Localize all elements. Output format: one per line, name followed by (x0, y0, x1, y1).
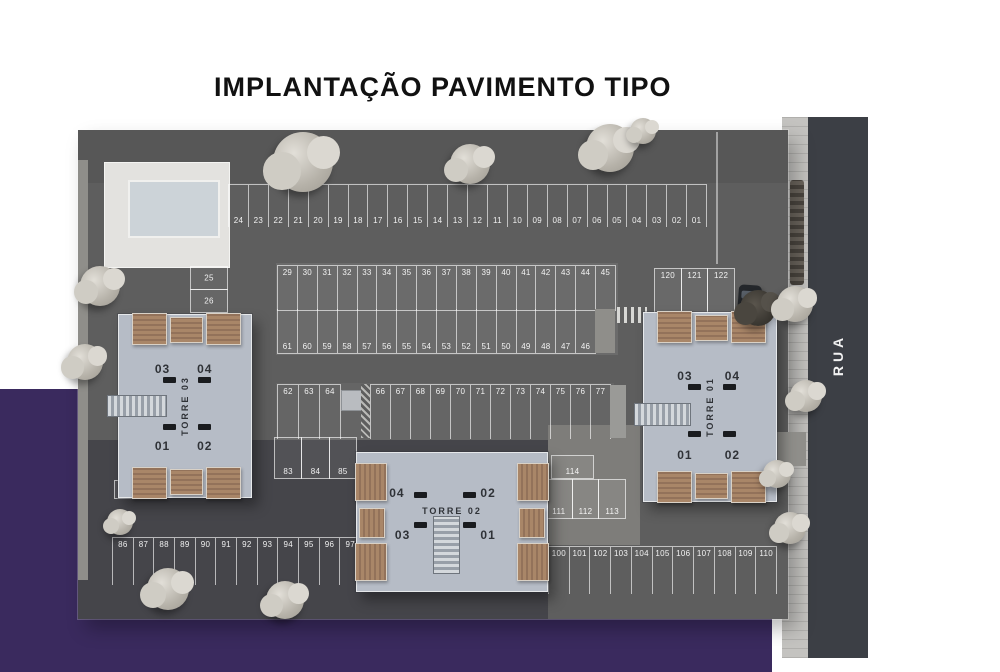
parking-stall: 73 (511, 385, 531, 439)
parking-stall-number: 15 (408, 216, 427, 225)
parking-stall-number: 87 (134, 540, 154, 549)
hedge-strip (790, 180, 804, 285)
balcony-roof (695, 315, 727, 341)
boundary-wall-line (716, 132, 718, 264)
parking-stall: 100 (549, 547, 570, 594)
stairwell (433, 516, 460, 573)
parking-stall-number: 40 (497, 268, 516, 277)
tree-icon (273, 132, 333, 192)
parking-stall: 67 (391, 385, 411, 439)
island-end-patch (595, 309, 615, 353)
parking-stall: 75 (551, 385, 571, 439)
parking-stall-number: 42 (536, 268, 555, 277)
parking-stall: 04 (627, 185, 647, 227)
balcony-roof (170, 469, 202, 495)
parking-stall-number: 18 (349, 216, 368, 225)
parking-stall-number: 21 (289, 216, 308, 225)
parking-stall: 93 (258, 538, 279, 585)
parking-stall-number: 92 (237, 540, 257, 549)
parking-stall-number: 02 (667, 216, 686, 225)
balcony-roof (657, 471, 692, 503)
parking-stall: 34 (377, 266, 397, 310)
parking-stall: 58 (338, 309, 358, 353)
parking-stall: 44 (576, 266, 596, 310)
parking-stall: 85 (329, 437, 357, 479)
parking-stall: 74 (531, 385, 551, 439)
parking-stall: 18 (349, 185, 369, 227)
page-title: IMPLANTAÇÃO PAVIMENTO TIPO (214, 72, 672, 103)
parking-stall-number: 103 (611, 549, 631, 558)
parking-stall-number: 72 (491, 387, 510, 396)
parking-stall-number: 94 (278, 540, 298, 549)
parking-stall-number: 67 (391, 387, 410, 396)
parking-mid-row-left: 626364 (277, 384, 341, 439)
parking-stall-number: 109 (736, 549, 756, 558)
tree-icon (80, 266, 120, 306)
parking-stall: 11 (488, 185, 508, 227)
parking-stall-number: 96 (320, 540, 340, 549)
unit-label: 01 (145, 439, 179, 453)
parking-stall-number: 13 (448, 216, 467, 225)
parking-stall: 47 (556, 309, 576, 353)
parking-stall: 31 (318, 266, 338, 310)
parking-stall-number: 54 (417, 342, 436, 351)
tree-icon (630, 118, 656, 144)
parking-stall-number: 71 (471, 387, 490, 396)
parking-stall-number: 121 (682, 271, 708, 280)
parking-stall-number: 88 (154, 540, 174, 549)
parking-stall: 83 (274, 437, 302, 479)
parking-stall-number: 19 (329, 216, 348, 225)
parking-stall-number: 49 (517, 342, 536, 351)
balcony-roof (206, 313, 241, 345)
parking-stall-number: 122 (708, 271, 734, 280)
parking-stall-number: 17 (368, 216, 387, 225)
parking-stall: 92 (237, 538, 258, 585)
parking-stall: 05 (608, 185, 628, 227)
parking-stall: 19 (329, 185, 349, 227)
stairwell (634, 403, 691, 426)
parking-stall: 94 (278, 538, 299, 585)
parking-spot-114: 114 (551, 455, 593, 479)
parking-stall-number: 59 (318, 342, 337, 351)
parking-stall: 114 (551, 455, 594, 479)
unit-label: 02 (463, 486, 512, 500)
parking-stall-number: 44 (576, 268, 595, 277)
parking-stall: 39 (477, 266, 497, 310)
parking-stall-number: 86 (113, 540, 133, 549)
unit-label: 01 (463, 528, 512, 542)
parking-stall: 72 (491, 385, 511, 439)
parking-stall-number: 66 (371, 387, 390, 396)
balcony-roof (206, 467, 241, 499)
parking-stall: 41 (517, 266, 537, 310)
parking-stall-number: 90 (196, 540, 216, 549)
parking-stall: 91 (216, 538, 237, 585)
parking-stall-number: 12 (468, 216, 487, 225)
parking-stall-number: 74 (531, 387, 550, 396)
parking-stall-number: 110 (756, 549, 776, 558)
tree-icon (763, 460, 791, 488)
parking-stall-number: 107 (694, 549, 714, 558)
parking-stall-number: 84 (302, 467, 328, 476)
tower-01: 03 04 01 02 TORRE 01 (643, 312, 777, 502)
balcony-roof (132, 313, 167, 345)
tower-name: TORRE 03 (180, 376, 190, 436)
parking-stall-number: 36 (417, 268, 436, 277)
parking-stall-number: 20 (309, 216, 328, 225)
parking-stall-number: 31 (318, 268, 337, 277)
parking-stall-number: 105 (653, 549, 673, 558)
swimming-pool (128, 180, 220, 238)
parking-stall: 38 (457, 266, 477, 310)
parking-stall: 25 (190, 266, 228, 290)
parking-stall-number: 35 (397, 268, 416, 277)
parking-stall: 90 (196, 538, 217, 585)
parking-stall-number: 11 (488, 216, 507, 225)
parking-stall-number: 16 (388, 216, 407, 225)
parking-stall-number: 26 (191, 297, 227, 306)
parking-stall-number: 91 (216, 540, 236, 549)
elevator-door (163, 424, 176, 430)
balcony-roof (657, 311, 692, 343)
tree-icon (450, 144, 490, 184)
parking-stall-number: 101 (570, 549, 590, 558)
balcony-roof (517, 543, 549, 581)
parking-stall: 50 (497, 309, 517, 353)
parking-stall: 113 (598, 479, 626, 519)
parking-stall: 45 (596, 266, 616, 310)
parking-stall: 12 (468, 185, 488, 227)
parking-stall-number: 33 (358, 268, 377, 277)
parking-stall: 43 (556, 266, 576, 310)
parking-stall-number: 75 (551, 387, 570, 396)
parking-stall-number: 23 (249, 216, 268, 225)
parking-stall: 10 (508, 185, 528, 227)
tree-icon (266, 581, 304, 619)
parking-stall-number: 113 (599, 507, 625, 516)
parking-stall: 14 (428, 185, 448, 227)
parking-stall-number: 102 (590, 549, 610, 558)
unit-label: 02 (188, 439, 222, 453)
parking-stall-number: 120 (655, 271, 681, 280)
parking-stall-number: 47 (556, 342, 575, 351)
parking-stall: 53 (437, 309, 457, 353)
parking-island-upper: 2930313233343536373839404142434445 (277, 265, 616, 311)
balcony-roof (695, 473, 727, 499)
elevator-door (163, 377, 176, 383)
parking-stall: 51 (477, 309, 497, 353)
parking-stall-number: 30 (298, 268, 317, 277)
parking-stall: 61 (278, 309, 298, 353)
parking-stall-number: 112 (573, 507, 599, 516)
mid-row-end-patch (610, 385, 626, 438)
unit-label: 03 (378, 528, 427, 542)
balcony-roof (517, 463, 549, 501)
parking-stall-number: 104 (632, 549, 652, 558)
parking-stall: 37 (437, 266, 457, 310)
parking-stall-number: 05 (608, 216, 627, 225)
parking-stall: 102 (590, 547, 611, 594)
parking-stall-number: 106 (673, 549, 693, 558)
parking-stall: 33 (358, 266, 378, 310)
parking-stall: 86 (113, 538, 134, 585)
parking-stall: 62 (278, 385, 299, 439)
unit-label: 04 (715, 369, 749, 383)
parking-stall: 32 (338, 266, 358, 310)
parking-stall: 42 (536, 266, 556, 310)
tree-icon (147, 568, 189, 610)
balcony-roof (355, 543, 387, 581)
parking-stall-number: 51 (477, 342, 496, 351)
parking-stall: 52 (457, 309, 477, 353)
parking-stall-number: 100 (549, 549, 569, 558)
parking-stall: 13 (448, 185, 468, 227)
parking-stall: 15 (408, 185, 428, 227)
parking-stall-number: 08 (548, 216, 567, 225)
parking-stall: 76 (571, 385, 591, 439)
parking-stall: 40 (497, 266, 517, 310)
parking-stall: 16 (388, 185, 408, 227)
parking-stall-number: 52 (457, 342, 476, 351)
parking-stall-number: 57 (358, 342, 377, 351)
parking-stall: 110 (756, 547, 777, 594)
parking-stall: 02 (667, 185, 687, 227)
parking-stall-number: 69 (431, 387, 450, 396)
parking-stall-number: 34 (377, 268, 396, 277)
parking-stall-number: 70 (451, 387, 470, 396)
parking-stall: 103 (611, 547, 632, 594)
parking-stall-number: 41 (517, 268, 536, 277)
parking-stall-number: 03 (647, 216, 666, 225)
parking-stall-number: 25 (191, 274, 227, 283)
parking-stall: 84 (301, 437, 329, 479)
parking-stall-number: 29 (278, 268, 297, 277)
parking-stall: 08 (548, 185, 568, 227)
parking-stall: 03 (647, 185, 667, 227)
parking-stall-number: 73 (511, 387, 530, 396)
parking-stall: 35 (397, 266, 417, 310)
parking-stall: 111 (545, 479, 573, 519)
parking-stall: 96 (320, 538, 341, 585)
unit-label: 03 (145, 362, 179, 376)
parking-stall: 06 (588, 185, 608, 227)
parking-stall: 09 (528, 185, 548, 227)
utility-box (341, 390, 362, 411)
parking-stall-number: 89 (175, 540, 195, 549)
parking-stall: 20 (309, 185, 329, 227)
parking-stall: 101 (570, 547, 591, 594)
tree-icon (777, 286, 813, 322)
parking-stall-number: 46 (576, 342, 595, 351)
parking-stall: 66 (371, 385, 391, 439)
parking-stall: 46 (576, 309, 596, 353)
parking-stall-number: 10 (508, 216, 527, 225)
parking-stall-number: 114 (552, 467, 593, 476)
parking-stall-number: 38 (457, 268, 476, 277)
parking-stall: 63 (299, 385, 320, 439)
parking-stall-number: 55 (397, 342, 416, 351)
parking-stall: 17 (368, 185, 388, 227)
elevator-door (198, 424, 211, 430)
parking-stall-number: 61 (278, 342, 297, 351)
parking-stall: 107 (694, 547, 715, 594)
street-label: RUA (829, 334, 847, 376)
parking-stall-number: 50 (497, 342, 516, 351)
balcony-roof (170, 317, 202, 343)
parking-stall-number: 111 (546, 507, 572, 516)
parking-spots-83-85: 838485 (274, 437, 356, 479)
parking-stall: 29 (278, 266, 298, 310)
balcony-roof (132, 467, 167, 499)
parking-stall: 68 (411, 385, 431, 439)
unit-label: 03 (668, 369, 702, 383)
parking-stall-number: 14 (428, 216, 447, 225)
parking-stall: 69 (431, 385, 451, 439)
parking-stall-number: 58 (338, 342, 357, 351)
parking-stall-number: 06 (588, 216, 607, 225)
parking-stall-number: 48 (536, 342, 555, 351)
parking-stall: 36 (417, 266, 437, 310)
balcony-roof (519, 508, 545, 538)
parking-stall: 71 (471, 385, 491, 439)
parking-stall-number: 22 (269, 216, 288, 225)
parking-stall-number: 85 (330, 467, 356, 476)
tree-icon (67, 344, 103, 380)
parking-stall-number: 39 (477, 268, 496, 277)
unit-label: 04 (372, 486, 421, 500)
parking-block-111-113: 111112113 (545, 479, 625, 519)
parking-stall-number: 43 (556, 268, 575, 277)
parking-stall-number: 24 (229, 216, 248, 225)
parking-stall: 01 (687, 185, 707, 227)
tree-icon (107, 509, 133, 535)
elevator-door (723, 431, 736, 437)
ramp-hatch (361, 384, 370, 438)
parking-stall-number: 68 (411, 387, 430, 396)
elevator-door (198, 377, 211, 383)
parking-stall: 106 (673, 547, 694, 594)
parking-stall: 57 (358, 309, 378, 353)
parking-stall-number: 83 (275, 467, 301, 476)
tree-icon (774, 512, 806, 544)
tower-02: 04 02 03 01 TORRE 02 (356, 452, 548, 592)
parking-island-lower: 61605958575655545352515049484746 (277, 309, 596, 354)
tower-name: TORRE 01 (705, 377, 715, 437)
tower-name: TORRE 02 (422, 506, 482, 516)
parking-stall: 109 (736, 547, 757, 594)
parking-stall: 77 (591, 385, 611, 439)
parking-row-bottom-right: 100101102103104105106107108109110 (548, 546, 777, 594)
stairwell (107, 395, 167, 417)
tree-icon (790, 380, 822, 412)
parking-stall-number: 37 (437, 268, 456, 277)
parking-stall-number: 108 (715, 549, 735, 558)
parking-stall-number: 04 (627, 216, 646, 225)
elevator-door (723, 384, 736, 390)
parking-stall: 54 (417, 309, 437, 353)
parking-stall: 07 (568, 185, 588, 227)
parking-stall: 59 (318, 309, 338, 353)
parking-stall: 30 (298, 266, 318, 310)
parking-stall: 22 (269, 185, 289, 227)
unit-label: 01 (668, 448, 702, 462)
parking-stall: 70 (451, 385, 471, 439)
parking-stall-number: 53 (437, 342, 456, 351)
unit-label: 02 (715, 448, 749, 462)
parking-stall: 24 (229, 185, 249, 227)
parking-stall: 49 (517, 309, 537, 353)
parking-pair-25-26: 2526 (190, 266, 228, 312)
parking-stall-number: 09 (528, 216, 547, 225)
unit-label: 04 (188, 362, 222, 376)
parking-stall: 104 (632, 547, 653, 594)
parking-stall: 105 (653, 547, 674, 594)
parking-stall: 26 (190, 289, 228, 313)
parking-stall: 95 (299, 538, 320, 585)
elevator-door (688, 431, 701, 437)
parking-stall: 48 (536, 309, 556, 353)
parking-stall: 64 (320, 385, 341, 439)
parking-stall-number: 32 (338, 268, 357, 277)
parking-stall-number: 63 (299, 387, 319, 396)
parking-mid-row-right: 666768697071727374757677 (370, 384, 611, 439)
parking-stall-number: 07 (568, 216, 587, 225)
parking-stall-number: 77 (591, 387, 610, 396)
parking-stall-number: 76 (571, 387, 590, 396)
parking-stall-number: 62 (278, 387, 298, 396)
parking-stall: 112 (572, 479, 600, 519)
parking-stall: 23 (249, 185, 269, 227)
parking-stall-number: 45 (596, 268, 615, 277)
tower-03: 03 04 01 02 TORRE 03 (118, 314, 252, 498)
parking-stall: 108 (715, 547, 736, 594)
site-plan-page: RUA 242322212019181716151413121110090807… (0, 0, 1000, 672)
parking-stall-number: 64 (320, 387, 340, 396)
parking-stall-number: 56 (377, 342, 396, 351)
parking-stall-number: 95 (299, 540, 319, 549)
parking-stall-number: 60 (298, 342, 317, 351)
parking-stall: 60 (298, 309, 318, 353)
parking-stall: 55 (397, 309, 417, 353)
parking-stall: 56 (377, 309, 397, 353)
parking-stall-number: 01 (687, 216, 706, 225)
parking-stall-number: 93 (258, 540, 278, 549)
elevator-door (688, 384, 701, 390)
